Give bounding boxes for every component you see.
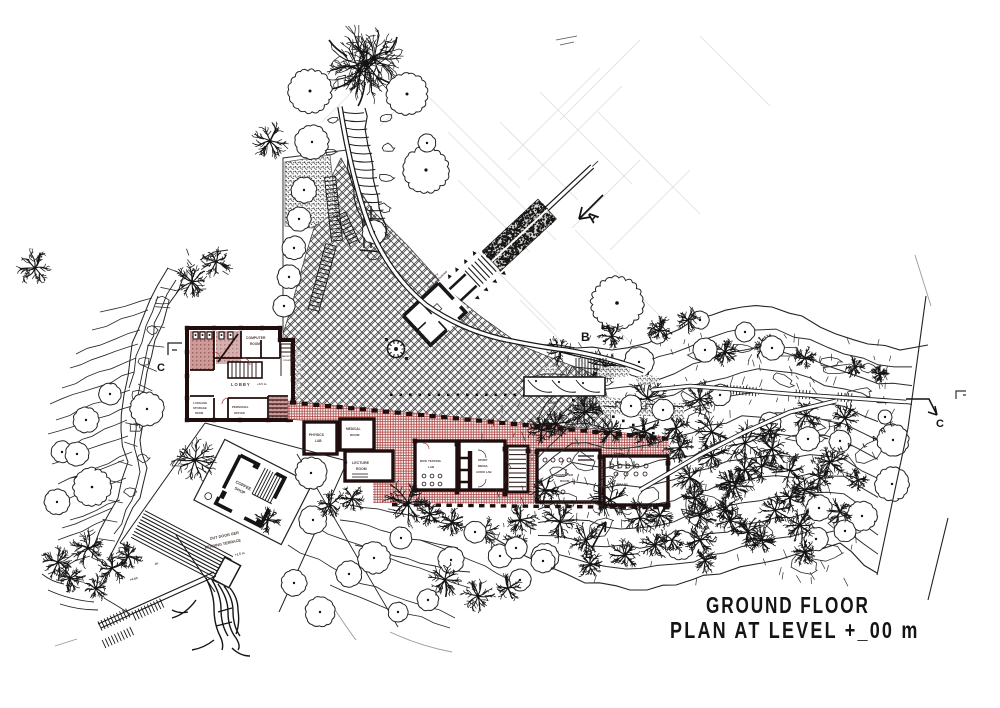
svg-text:LECTURE: LECTURE: [352, 461, 370, 465]
svg-text:+0.5 m: +0.5 m: [257, 382, 267, 386]
svg-text:MEDIA: MEDIA: [478, 464, 489, 468]
svg-text:ROOM: ROOM: [350, 433, 360, 437]
svg-text:AUDIO LAB: AUDIO LAB: [476, 470, 492, 474]
svg-text:B: B: [581, 330, 590, 344]
svg-text:PHYSICS: PHYSICS: [309, 433, 325, 437]
svg-text:PERSONAL: PERSONAL: [232, 405, 249, 409]
svg-text:LUGGAGE: LUGGAGE: [193, 401, 207, 405]
svg-text:LOBBY: LOBBY: [231, 382, 251, 387]
svg-text:LAB: LAB: [428, 465, 435, 469]
svg-text:ROOM: ROOM: [560, 479, 570, 483]
svg-text:LAB: LAB: [315, 439, 322, 443]
svg-text:OFFICE: OFFICE: [234, 411, 245, 415]
svg-text:SPIRIT: SPIRIT: [478, 458, 488, 462]
svg-text:ROOM: ROOM: [356, 467, 367, 471]
svg-text:GROUND FLOOR: GROUND FLOOR: [706, 593, 870, 619]
svg-text:B: B: [585, 549, 593, 561]
svg-text:C: C: [157, 362, 165, 374]
svg-text:COUNTER: COUNTER: [283, 360, 294, 362]
svg-text:ROOM: ROOM: [250, 342, 260, 346]
svg-text:MEDICAL: MEDICAL: [346, 427, 361, 431]
svg-text:STORAGE: STORAGE: [193, 406, 207, 410]
svg-text:±0.00: ±0.00: [548, 401, 557, 405]
svg-text:D: D: [531, 457, 533, 461]
svg-text:C: C: [936, 418, 944, 430]
svg-text:ROOM: ROOM: [195, 411, 203, 415]
svg-text:PLAN AT LEVEL +_00 m: PLAN AT LEVEL +_00 m: [670, 618, 920, 644]
svg-text:COMPUTER: COMPUTER: [246, 336, 266, 340]
svg-text:RICE TESTING: RICE TESTING: [420, 459, 442, 463]
svg-text:RECEPTION: RECEPTION: [282, 356, 295, 358]
